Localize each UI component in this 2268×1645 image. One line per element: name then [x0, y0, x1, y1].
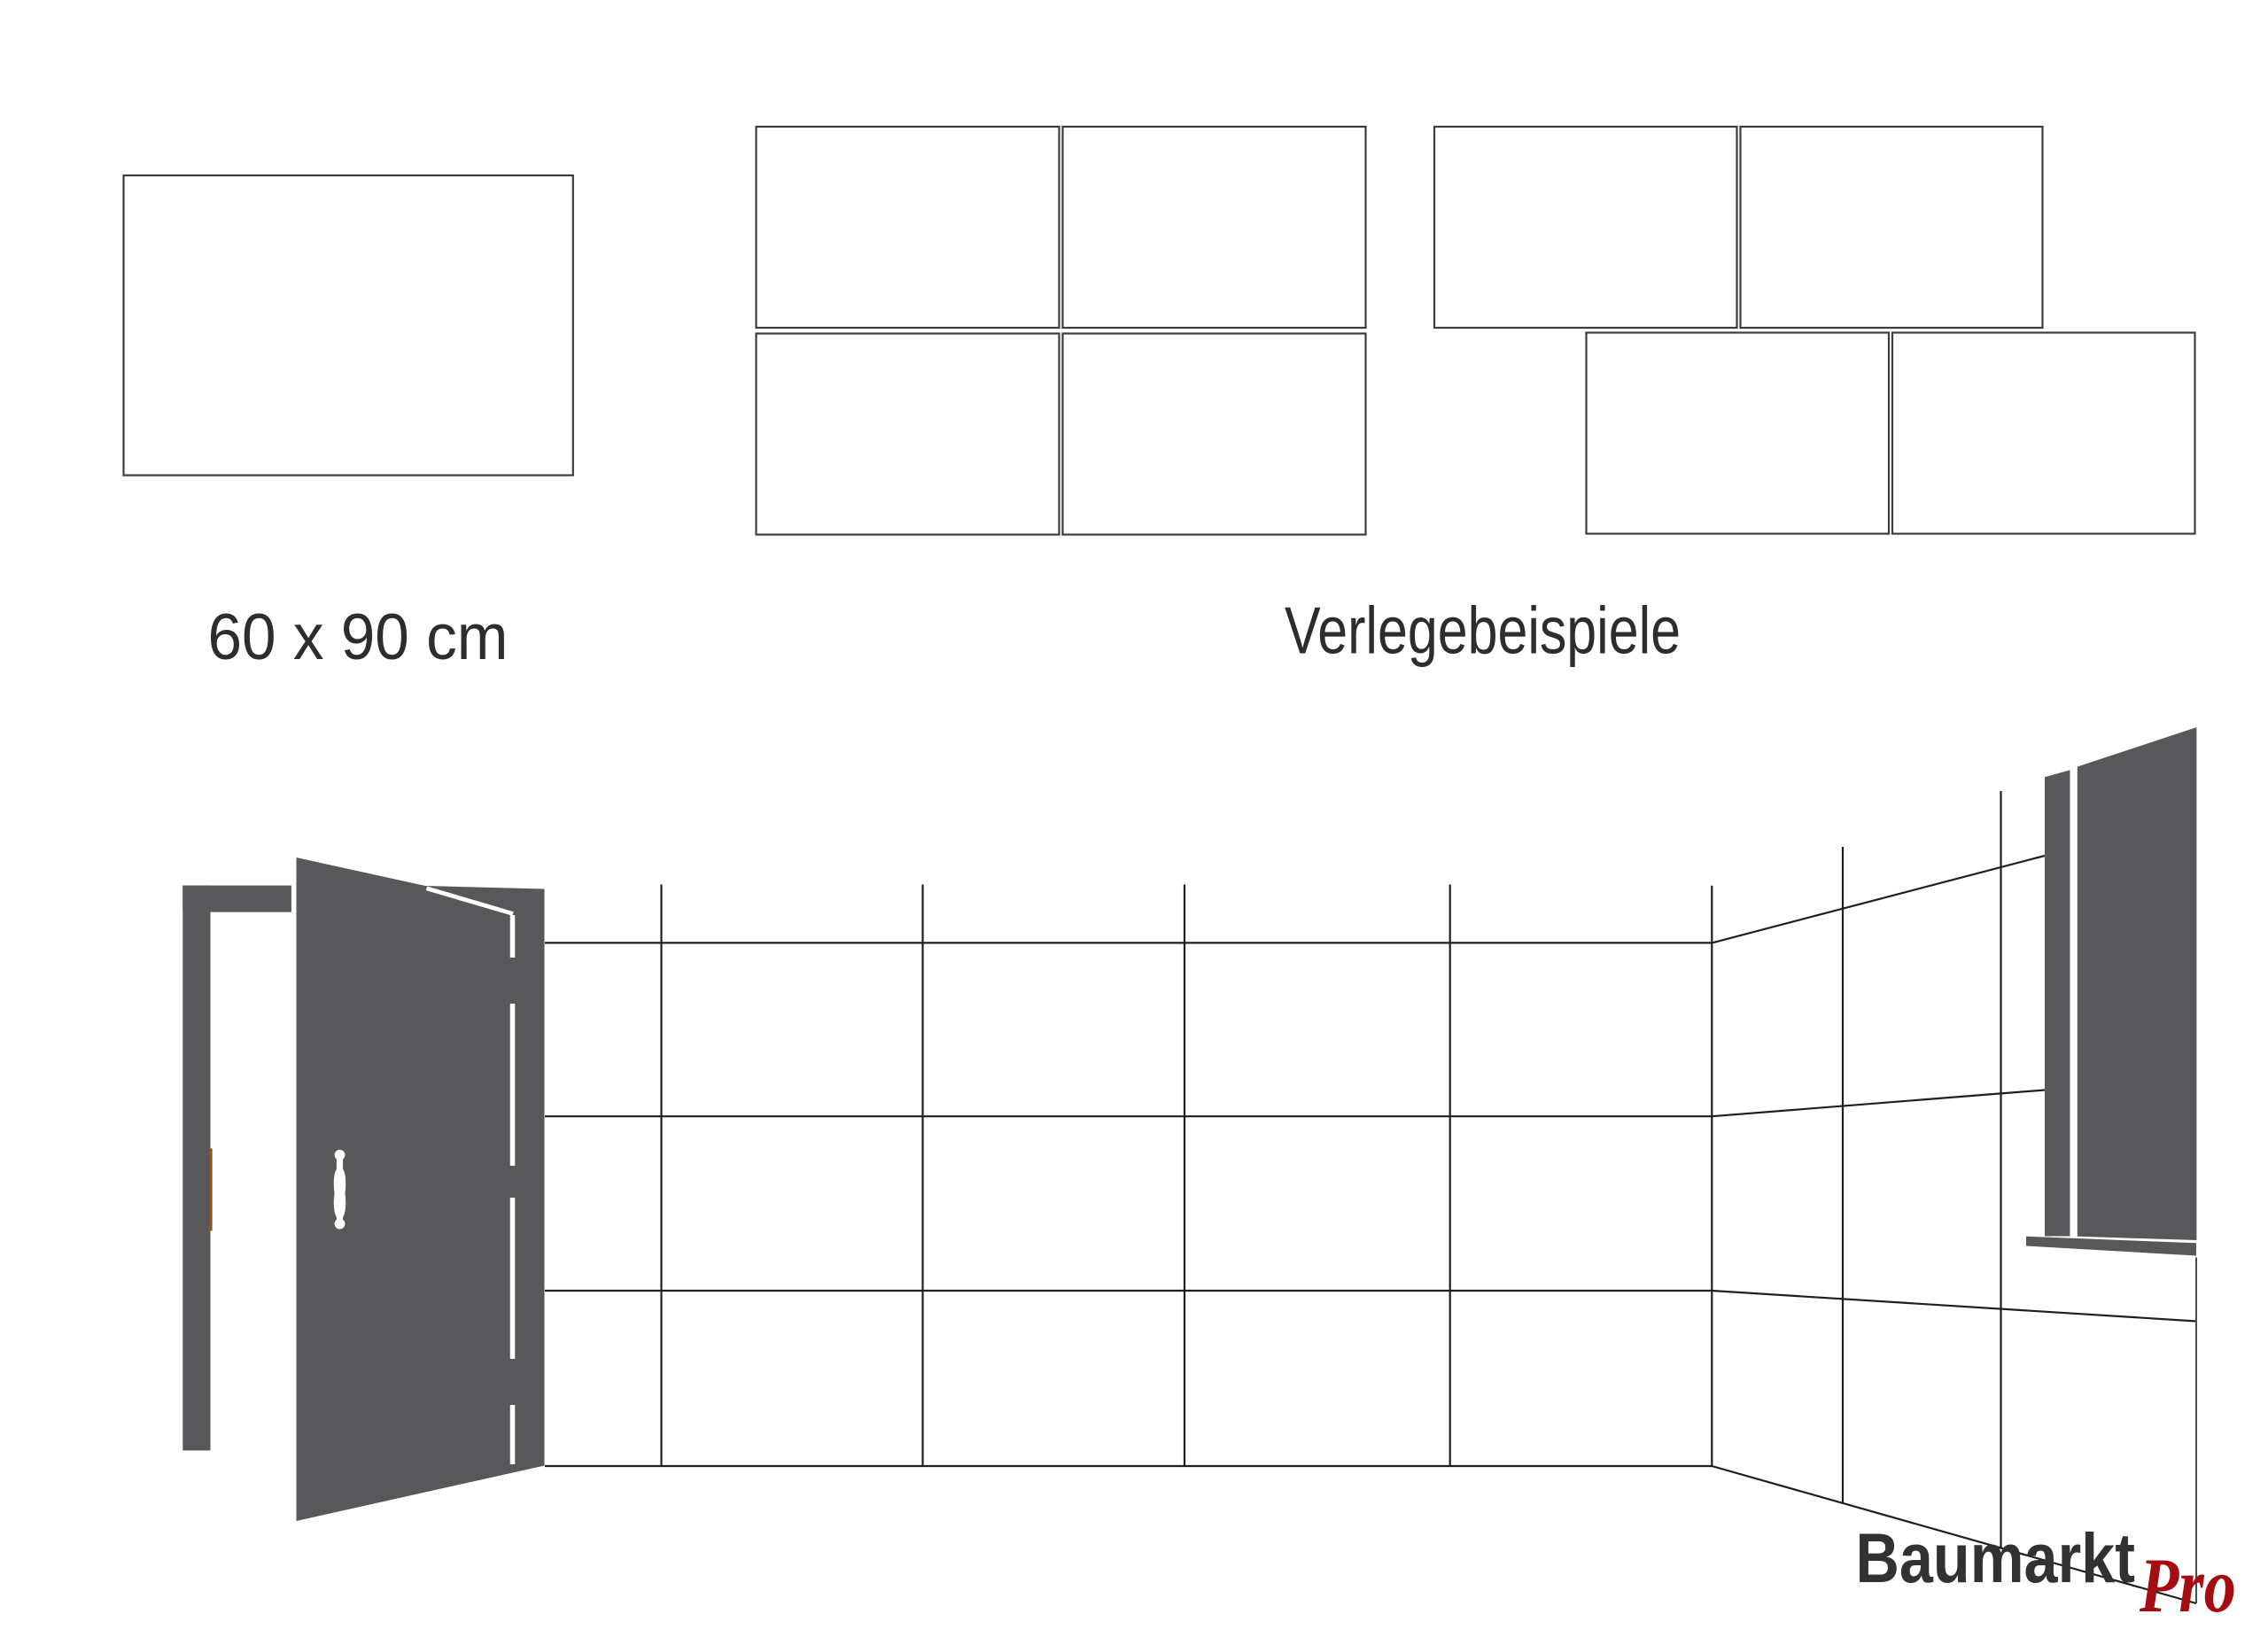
svg-text:Baumarkt: Baumarkt: [1856, 1519, 2136, 1597]
svg-text:Pro: Pro: [2139, 1543, 2236, 1629]
svg-text:Verlegebeispiele: Verlegebeispiele: [1285, 594, 1681, 668]
svg-text:60 x 90 cm: 60 x 90 cm: [208, 600, 509, 673]
